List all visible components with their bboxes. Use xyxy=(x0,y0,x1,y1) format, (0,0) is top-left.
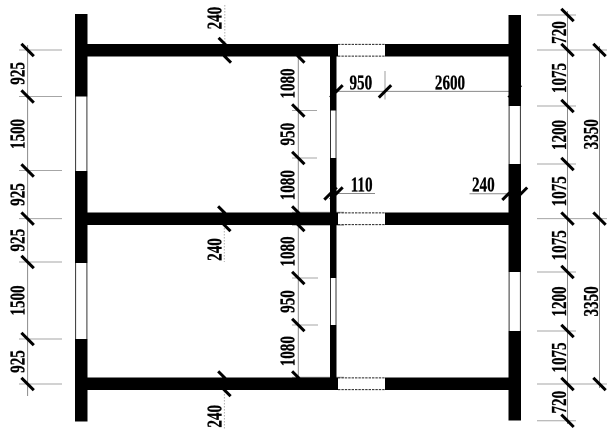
svg-text:720: 720 xyxy=(548,21,571,44)
svg-text:3350: 3350 xyxy=(579,119,602,149)
svg-text:1075: 1075 xyxy=(548,176,571,206)
svg-text:240: 240 xyxy=(472,173,495,196)
svg-text:2600: 2600 xyxy=(435,71,465,94)
svg-text:950: 950 xyxy=(349,71,372,94)
svg-text:1080: 1080 xyxy=(276,236,299,266)
svg-text:1080: 1080 xyxy=(276,336,299,366)
svg-text:1075: 1075 xyxy=(548,230,571,260)
svg-text:240: 240 xyxy=(203,405,226,428)
svg-text:240: 240 xyxy=(203,238,226,261)
svg-text:720: 720 xyxy=(548,391,571,414)
svg-text:1200: 1200 xyxy=(548,120,571,150)
svg-text:950: 950 xyxy=(276,290,299,313)
svg-text:925: 925 xyxy=(6,62,29,85)
svg-text:1500: 1500 xyxy=(6,119,29,149)
svg-text:1075: 1075 xyxy=(548,63,571,93)
svg-text:1200: 1200 xyxy=(548,286,571,316)
svg-text:240: 240 xyxy=(203,7,226,30)
svg-text:3350: 3350 xyxy=(579,286,602,316)
svg-text:950: 950 xyxy=(276,123,299,146)
svg-text:925: 925 xyxy=(6,183,29,206)
svg-text:1080: 1080 xyxy=(276,170,299,200)
svg-text:1075: 1075 xyxy=(548,342,571,372)
svg-text:1080: 1080 xyxy=(276,68,299,98)
svg-text:925: 925 xyxy=(6,229,29,252)
svg-text:110: 110 xyxy=(351,173,373,196)
svg-text:925: 925 xyxy=(6,350,29,373)
svg-text:1500: 1500 xyxy=(6,285,29,315)
